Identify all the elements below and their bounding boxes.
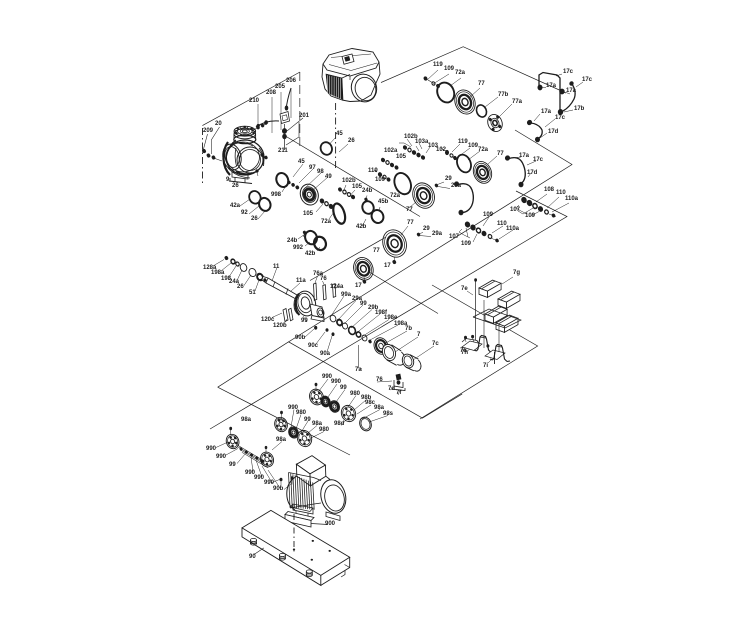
svg-text:49: 49	[325, 174, 332, 180]
svg-text:17a: 17a	[546, 83, 557, 89]
svg-text:990: 990	[206, 446, 217, 452]
svg-text:90b: 90b	[295, 335, 306, 341]
svg-text:7i: 7i	[483, 363, 488, 369]
svg-text:17d: 17d	[527, 170, 538, 176]
svg-text:17a: 17a	[541, 109, 552, 115]
svg-text:109: 109	[483, 212, 494, 218]
svg-text:26: 26	[232, 183, 239, 189]
svg-text:77: 77	[478, 81, 485, 87]
svg-text:103a: 103a	[415, 139, 429, 145]
svg-text:42b: 42b	[356, 224, 367, 230]
svg-text:7f: 7f	[396, 390, 402, 396]
svg-text:900: 900	[325, 521, 336, 527]
svg-text:17c: 17c	[563, 69, 574, 75]
svg-text:17d: 17d	[548, 129, 559, 135]
svg-text:99: 99	[304, 417, 311, 423]
svg-text:29a: 29a	[432, 231, 443, 237]
svg-text:201: 201	[299, 113, 310, 119]
svg-text:119: 119	[433, 62, 443, 68]
svg-text:72a: 72a	[390, 193, 401, 199]
svg-text:206: 206	[286, 78, 297, 84]
svg-text:77: 77	[406, 207, 413, 213]
svg-text:45: 45	[336, 131, 343, 137]
svg-text:211: 211	[278, 148, 288, 154]
svg-text:72a: 72a	[455, 70, 466, 76]
svg-text:17c: 17c	[555, 115, 566, 121]
svg-text:109: 109	[444, 66, 455, 72]
svg-text:51: 51	[249, 290, 256, 296]
svg-text:77: 77	[497, 151, 504, 157]
svg-text:29: 29	[445, 176, 452, 182]
svg-text:7b: 7b	[405, 326, 412, 332]
svg-text:124a: 124a	[330, 284, 344, 290]
svg-text:9: 9	[226, 177, 230, 183]
svg-text:109: 109	[461, 241, 472, 247]
svg-text:109: 109	[375, 177, 386, 183]
svg-text:77b: 77b	[498, 92, 509, 98]
svg-text:11a: 11a	[296, 278, 306, 284]
svg-text:92: 92	[241, 210, 248, 216]
svg-text:7e: 7e	[461, 286, 468, 292]
svg-text:210: 210	[249, 98, 260, 104]
svg-text:7d: 7d	[388, 386, 395, 392]
svg-text:7c: 7c	[432, 341, 439, 347]
svg-text:992: 992	[293, 245, 304, 251]
svg-text:107: 107	[510, 207, 521, 213]
svg-text:17a: 17a	[519, 153, 530, 159]
svg-text:17: 17	[355, 283, 362, 289]
svg-text:45: 45	[298, 159, 305, 165]
svg-text:980: 980	[319, 427, 330, 433]
svg-text:110a: 110a	[565, 196, 579, 202]
svg-text:90a: 90a	[320, 351, 331, 357]
svg-text:29: 29	[423, 226, 430, 232]
svg-text:7: 7	[417, 332, 421, 338]
svg-text:7h: 7h	[461, 350, 468, 356]
svg-text:108: 108	[544, 187, 555, 193]
svg-text:99: 99	[229, 462, 236, 468]
svg-text:90b: 90b	[273, 486, 284, 492]
svg-text:7g: 7g	[513, 270, 520, 276]
svg-text:119: 119	[458, 139, 468, 145]
svg-text:77a: 77a	[512, 99, 523, 105]
svg-text:208: 208	[266, 90, 277, 96]
svg-text:72a: 72a	[321, 219, 332, 225]
svg-text:26: 26	[348, 138, 355, 144]
svg-text:17c: 17c	[533, 157, 544, 163]
svg-text:99: 99	[301, 318, 308, 324]
svg-text:980: 980	[296, 410, 307, 416]
svg-text:29a: 29a	[451, 183, 462, 189]
svg-text:76: 76	[320, 276, 327, 282]
svg-text:11: 11	[273, 264, 280, 270]
svg-text:990: 990	[216, 454, 227, 460]
svg-text:209: 209	[203, 128, 214, 134]
svg-text:120b: 120b	[273, 323, 287, 329]
svg-text:17b: 17b	[574, 106, 585, 112]
svg-text:20: 20	[215, 121, 222, 127]
svg-text:98: 98	[317, 169, 324, 175]
svg-text:99a: 99a	[341, 292, 352, 298]
svg-text:109: 109	[525, 213, 536, 219]
svg-text:107: 107	[449, 234, 460, 240]
svg-text:77: 77	[373, 248, 380, 254]
svg-text:17a: 17a	[566, 88, 577, 94]
svg-text:90: 90	[249, 554, 256, 560]
svg-text:110a: 110a	[506, 226, 520, 232]
svg-text:72a: 72a	[478, 147, 489, 153]
svg-text:90c: 90c	[308, 343, 319, 349]
svg-text:205: 205	[275, 84, 286, 90]
svg-text:98s: 98s	[383, 411, 394, 417]
svg-text:7a: 7a	[355, 367, 362, 373]
svg-text:998: 998	[271, 192, 282, 198]
svg-text:102: 102	[436, 147, 447, 153]
svg-text:105: 105	[396, 154, 407, 160]
svg-text:24b: 24b	[287, 238, 298, 244]
svg-text:99: 99	[340, 385, 347, 391]
svg-text:45b: 45b	[378, 199, 389, 205]
svg-text:980: 980	[350, 391, 361, 397]
svg-text:24b: 24b	[362, 188, 373, 194]
svg-text:98a: 98a	[241, 417, 252, 423]
svg-text:119: 119	[368, 168, 378, 174]
svg-text:17: 17	[384, 263, 391, 269]
svg-text:17c: 17c	[582, 77, 593, 83]
svg-text:26: 26	[251, 216, 258, 222]
svg-text:97: 97	[309, 165, 316, 171]
svg-text:76: 76	[376, 377, 383, 383]
svg-text:42a: 42a	[230, 203, 241, 209]
svg-text:42b: 42b	[305, 251, 316, 257]
svg-text:26: 26	[237, 284, 244, 290]
svg-text:105: 105	[303, 211, 314, 217]
svg-text:99: 99	[360, 301, 367, 307]
svg-text:98d: 98d	[334, 421, 345, 427]
svg-text:98a: 98a	[276, 437, 287, 443]
svg-text:77: 77	[407, 220, 414, 226]
